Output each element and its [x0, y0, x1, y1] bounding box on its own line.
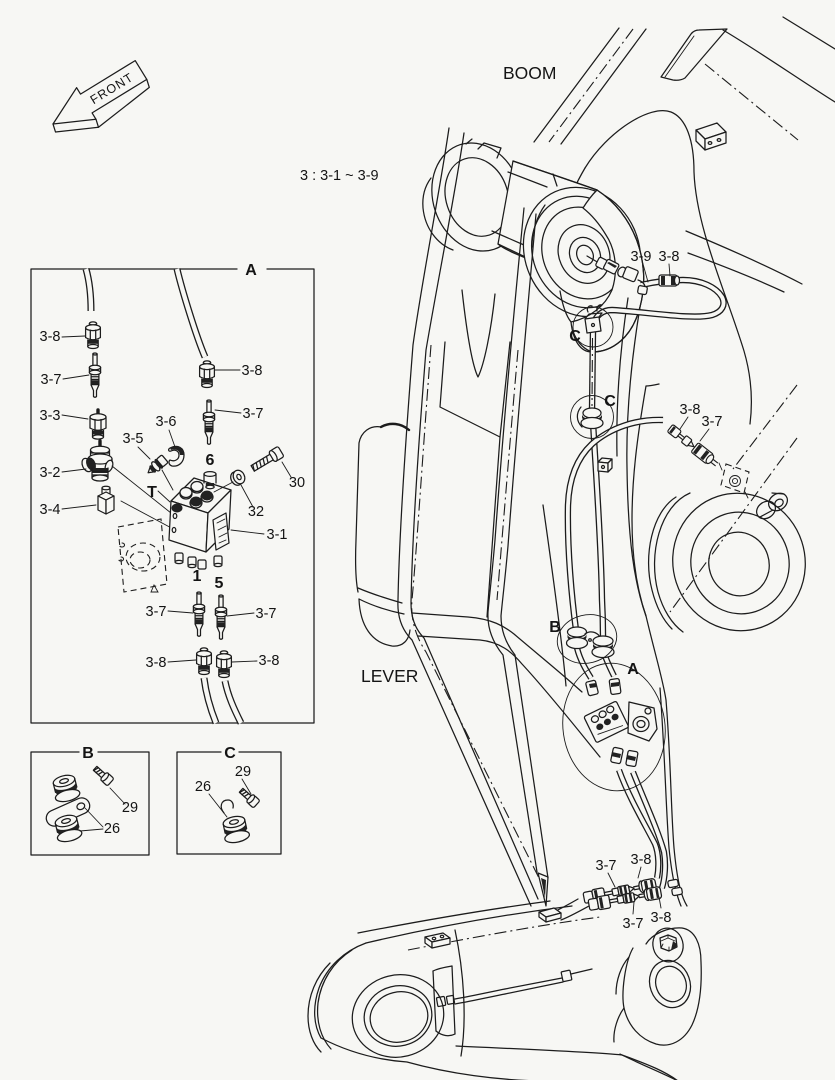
- svg-text:6: 6: [206, 452, 215, 469]
- svg-text:B: B: [82, 745, 94, 762]
- svg-text:3 : 3-1 ~ 3-9: 3 : 3-1 ~ 3-9: [300, 168, 379, 184]
- svg-text:LEVER: LEVER: [361, 666, 418, 686]
- svg-text:32: 32: [248, 504, 264, 520]
- svg-text:29: 29: [235, 764, 251, 780]
- svg-text:3-3: 3-3: [40, 408, 61, 424]
- svg-text:3-9: 3-9: [631, 249, 652, 265]
- svg-text:3-8: 3-8: [259, 653, 280, 669]
- svg-text:C: C: [569, 328, 581, 345]
- svg-text:26: 26: [104, 821, 120, 837]
- svg-text:30: 30: [289, 475, 305, 491]
- svg-text:3-8: 3-8: [146, 655, 167, 671]
- svg-text:3-7: 3-7: [243, 406, 264, 422]
- svg-text:B: B: [549, 619, 561, 636]
- svg-text:3-7: 3-7: [41, 372, 62, 388]
- svg-text:3-7: 3-7: [596, 858, 617, 874]
- svg-text:3-8: 3-8: [651, 910, 672, 926]
- svg-text:3-2: 3-2: [40, 465, 61, 481]
- svg-text:3-8: 3-8: [680, 402, 701, 418]
- svg-text:3-8: 3-8: [40, 329, 61, 345]
- svg-text:A: A: [245, 262, 257, 279]
- svg-text:3-7: 3-7: [623, 916, 644, 932]
- svg-text:3-8: 3-8: [242, 363, 263, 379]
- svg-text:29: 29: [122, 800, 138, 816]
- svg-text:3-7: 3-7: [146, 604, 167, 620]
- svg-text:5: 5: [215, 575, 224, 592]
- svg-text:3-5: 3-5: [123, 431, 144, 447]
- svg-text:T: T: [147, 484, 157, 501]
- svg-text:3-6: 3-6: [156, 414, 177, 430]
- svg-text:1: 1: [193, 568, 202, 585]
- svg-text:3-8: 3-8: [631, 852, 652, 868]
- svg-text:C: C: [224, 745, 236, 762]
- svg-text:A: A: [627, 661, 639, 678]
- svg-text:3-4: 3-4: [40, 502, 61, 518]
- svg-text:BOOM: BOOM: [503, 63, 556, 83]
- svg-text:3-1: 3-1: [267, 527, 288, 543]
- svg-text:C: C: [604, 393, 616, 410]
- svg-text:3-8: 3-8: [659, 249, 680, 265]
- svg-text:3-7: 3-7: [702, 414, 723, 430]
- svg-text:26: 26: [195, 779, 211, 795]
- svg-text:3-7: 3-7: [256, 606, 277, 622]
